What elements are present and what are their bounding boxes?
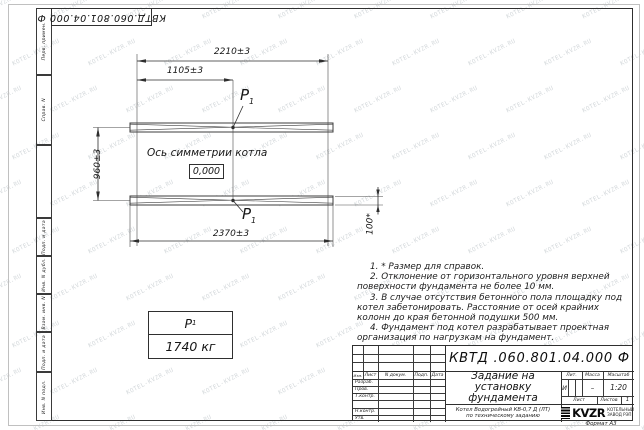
tb-header-date: Дата	[430, 371, 445, 379]
notes-list: 1. * Размер для справок. 2. Отклонение о…	[357, 262, 631, 344]
axis-of-symmetry-label: Ось симметрии котла	[147, 147, 267, 159]
load-table: P1 1740 кг	[148, 311, 233, 359]
tb-doc-number: КВТД .060.801.04.000 Ф	[445, 346, 634, 371]
load-table-mass: 1740 кг	[149, 335, 232, 358]
tb-scale-value: 1:20	[603, 379, 634, 396]
tb-header-list: Лист	[363, 371, 378, 379]
logo-name: KVZR	[572, 406, 605, 420]
dim-right-label: 100*	[366, 209, 376, 240]
note-item: 3. В случае отсутствия бетонного пола пл…	[357, 293, 631, 324]
note-item: 1. * Размер для справок.	[357, 262, 631, 272]
load-point-label-top: P1	[240, 86, 254, 106]
tb-row-tkontr: Т.контр.	[353, 393, 380, 400]
tb-header-lit: Лит.	[561, 371, 582, 379]
dim-left-label: 960±3	[93, 144, 103, 184]
drawing-sheet: KOTEL-KVZR.RUKOTEL-KVZR.RUKOTEL-KVZR.RUK…	[0, 0, 644, 430]
tb-sheets-value: 1	[621, 396, 634, 404]
tb-header-podp: Подп.	[413, 371, 430, 379]
tb-product-description: Котел Водогрейный КВ-0,7 Д (ЛТ) по техни…	[445, 404, 561, 422]
format-label: Формат А3	[570, 421, 632, 427]
tb-row-utv: Утв.	[353, 415, 380, 422]
dim-top-label: 2210±3	[197, 47, 267, 57]
tb-header-doc-no: N докум.	[378, 371, 413, 379]
logo-caption: КОТЕЛЬНЫЙ ЗАВОД РЭП	[607, 408, 634, 418]
tb-row-nkontr: Н.контр.	[353, 408, 380, 415]
dim-bottom-label: 2370±3	[196, 229, 266, 239]
tb-row-prov: Пров.	[353, 386, 380, 393]
level-mark: 0,000	[189, 164, 224, 179]
tb-header-mass: Масса	[582, 371, 603, 379]
tb-sheets-label: Листов	[597, 396, 621, 404]
kvzr-logo: KVZR КОТЕЛЬНЫЙ ЗАВОД РЭП	[561, 404, 634, 422]
tb-header-izm: Изм.	[353, 371, 363, 379]
tb-header-scale: Масштаб	[603, 371, 634, 379]
dim-top-half-label: 1105±3	[152, 66, 218, 76]
waves-logo-icon	[561, 407, 570, 419]
tb-title: Задание на установку фундамента	[445, 371, 561, 404]
load-point-label-bottom: P1	[242, 205, 256, 225]
tb-sheet-label: Лист	[561, 396, 597, 404]
tb-mass-value: –	[582, 379, 603, 396]
note-item: 4. Фундамент под котел разрабатывает про…	[357, 323, 631, 343]
load-table-name: P1	[149, 312, 232, 335]
tb-lit-value: И	[561, 379, 568, 396]
title-block: Изм. Лист N докум. Подп. Дата Разраб. Пр…	[352, 345, 633, 421]
note-item: 2. Отклонение от горизонтального уровня …	[357, 272, 631, 292]
tb-row-razrab: Разраб.	[353, 379, 380, 386]
tb-row-empty	[353, 400, 380, 408]
